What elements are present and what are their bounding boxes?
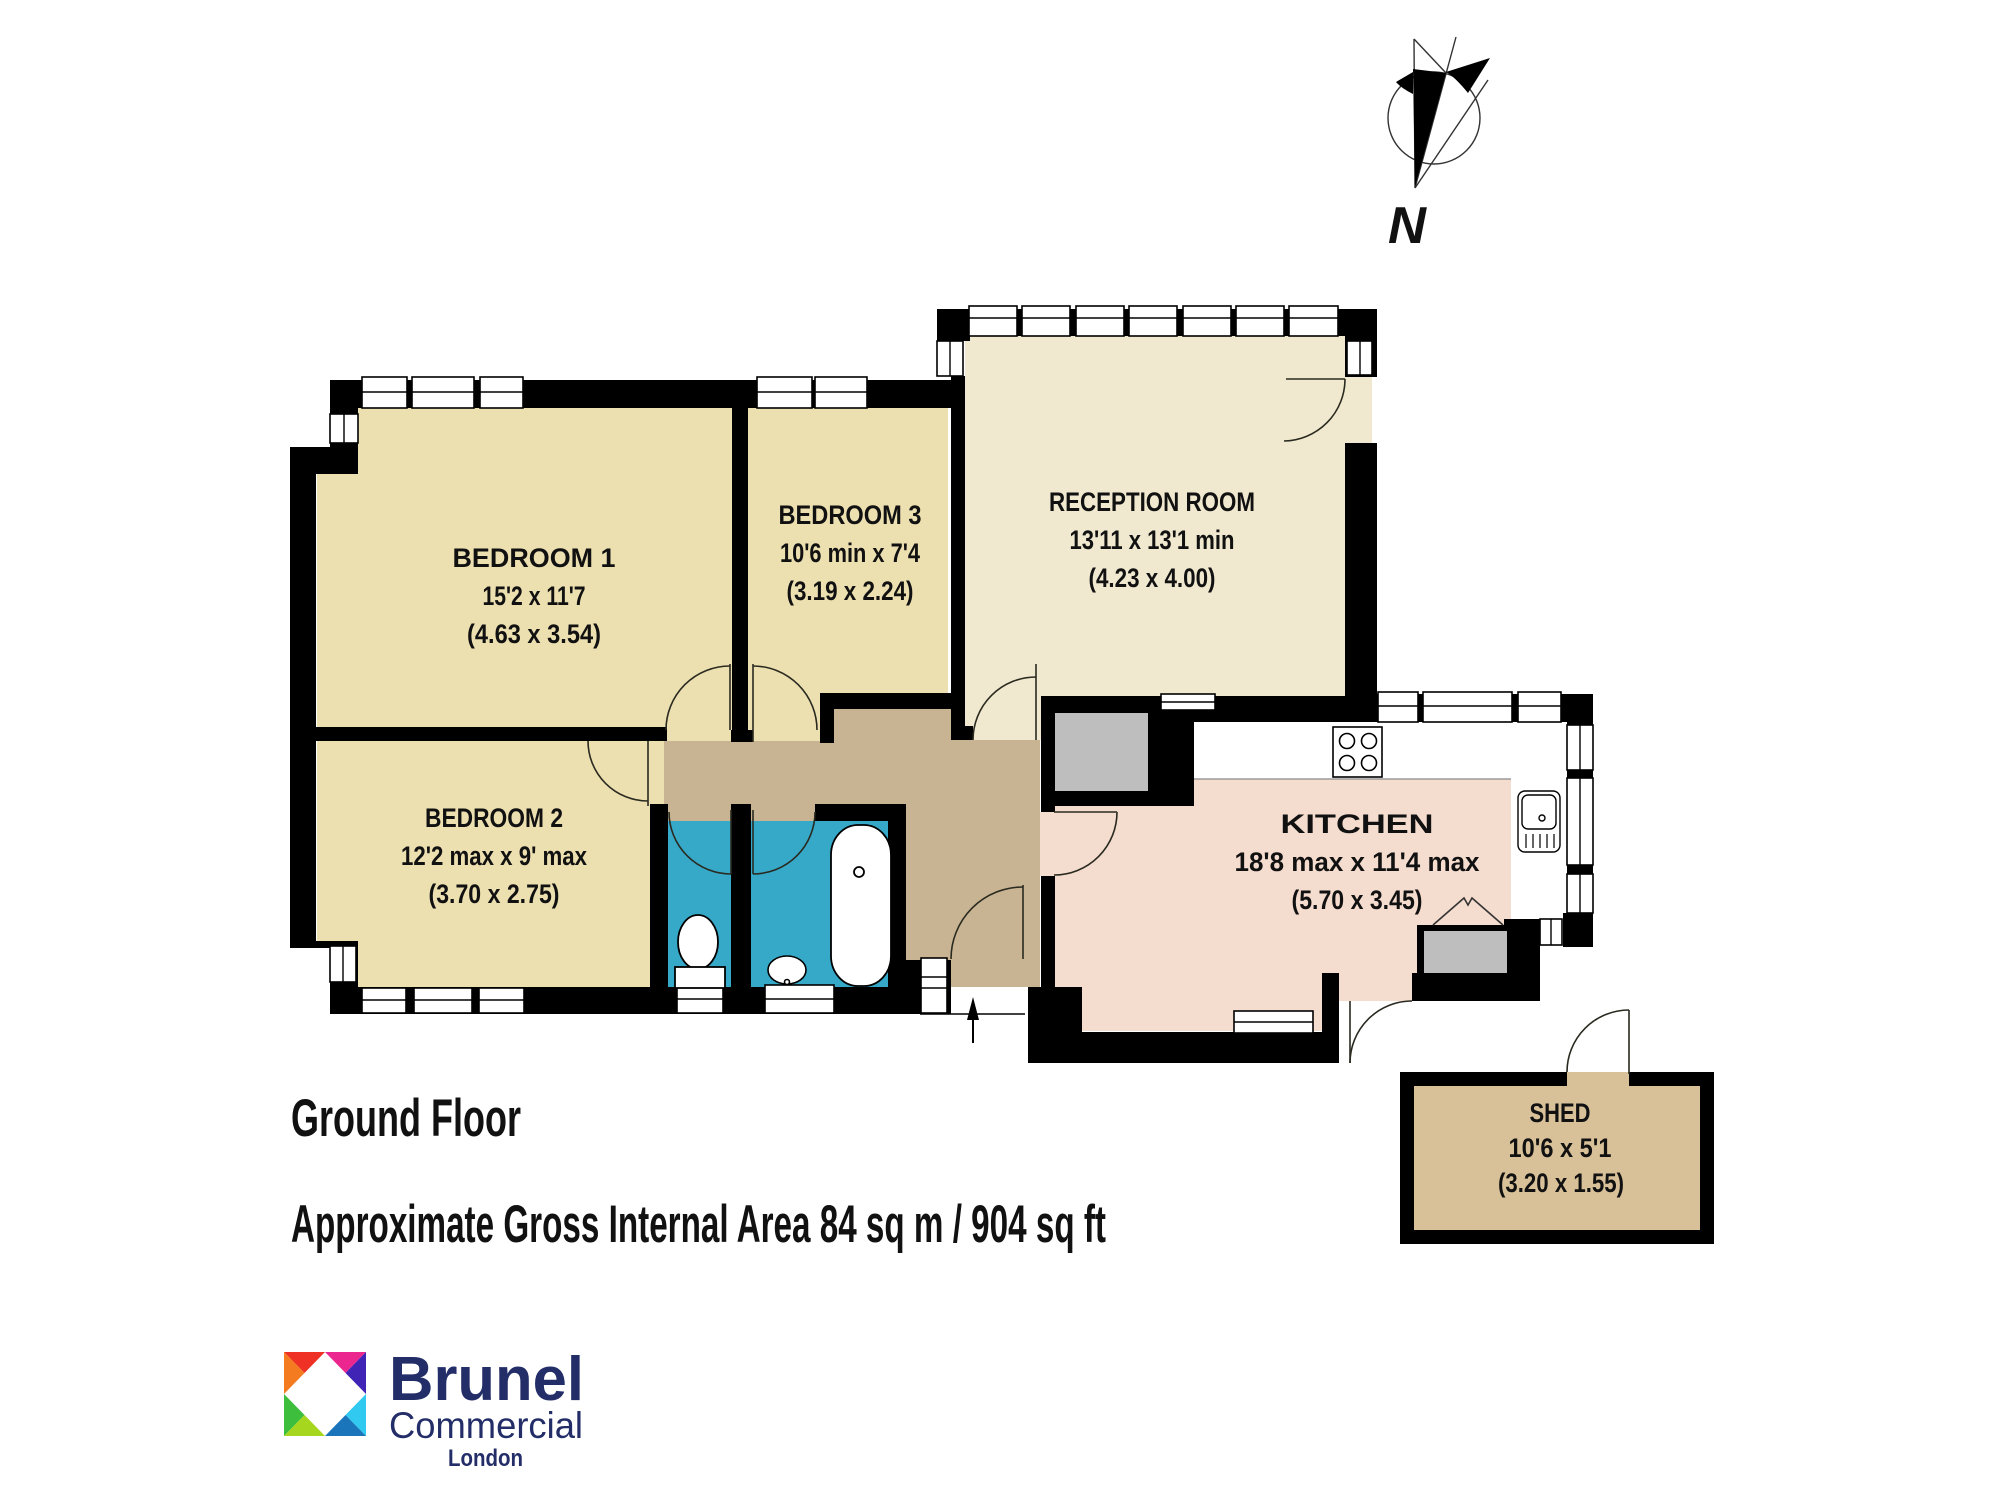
svg-text:13'11 x 13'1 min: 13'11 x 13'1 min xyxy=(1070,525,1235,555)
svg-text:(4.63 x 3.54): (4.63 x 3.54) xyxy=(467,619,601,649)
svg-text:BEDROOM 2: BEDROOM 2 xyxy=(425,803,563,833)
svg-text:Ground Floor: Ground Floor xyxy=(291,1089,521,1148)
svg-text:10'6 x 5'1: 10'6 x 5'1 xyxy=(1509,1133,1612,1163)
svg-text:BEDROOM 3: BEDROOM 3 xyxy=(779,500,922,530)
svg-text:N: N xyxy=(1388,197,1427,255)
svg-text:(3.20 x 1.55): (3.20 x 1.55) xyxy=(1498,1168,1624,1198)
svg-text:Brunel: Brunel xyxy=(389,1345,584,1414)
svg-text:KITCHEN: KITCHEN xyxy=(1281,809,1434,839)
svg-text:10'6 min x 7'4: 10'6 min x 7'4 xyxy=(780,538,920,568)
svg-text:(3.70 x 2.75): (3.70 x 2.75) xyxy=(429,879,560,909)
svg-text:RECEPTION ROOM: RECEPTION ROOM xyxy=(1049,487,1255,517)
svg-text:Approximate Gross Internal Are: Approximate Gross Internal Area 84 sq m … xyxy=(291,1195,1106,1254)
svg-text:SHED: SHED xyxy=(1530,1098,1591,1128)
svg-text:BEDROOM 1: BEDROOM 1 xyxy=(453,543,616,573)
svg-text:London: London xyxy=(448,1445,523,1472)
svg-text:12'2 max x 9' max: 12'2 max x 9' max xyxy=(401,841,587,871)
svg-text:(3.19 x 2.24): (3.19 x 2.24) xyxy=(787,576,914,606)
svg-text:15'2 x 11'7: 15'2 x 11'7 xyxy=(483,581,586,611)
svg-text:(5.70 x 3.45): (5.70 x 3.45) xyxy=(1292,885,1423,915)
svg-text:18'8 max x 11'4 max: 18'8 max x 11'4 max xyxy=(1235,847,1480,877)
svg-text:(4.23 x 4.00): (4.23 x 4.00) xyxy=(1089,563,1216,593)
svg-text:Commercial: Commercial xyxy=(389,1405,583,1446)
